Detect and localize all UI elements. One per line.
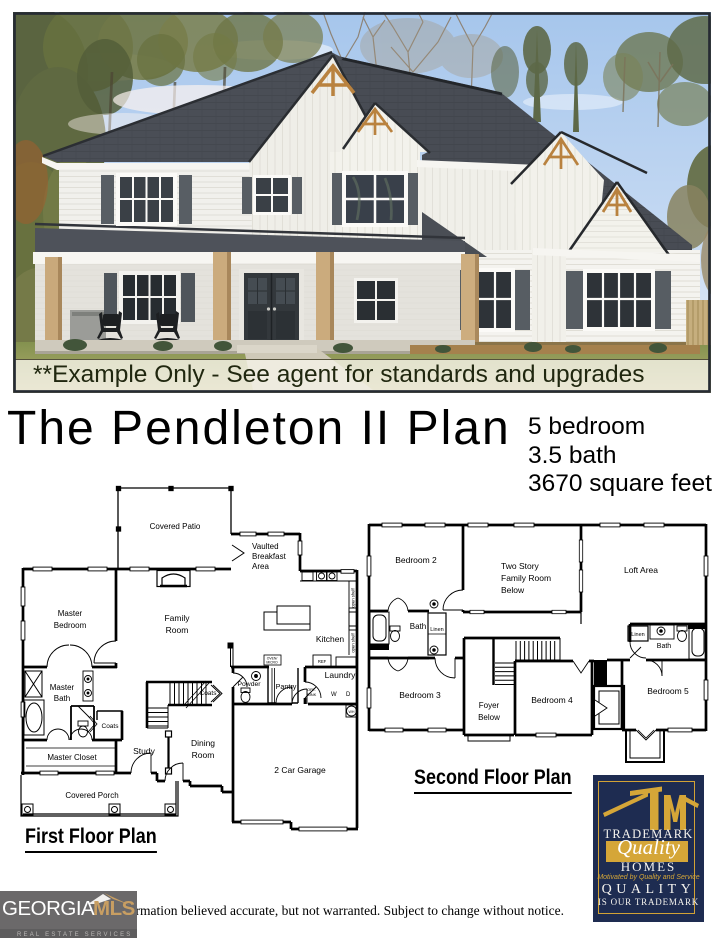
svg-text:Two Story: Two Story [501,561,540,571]
svg-text:MLS: MLS [93,897,135,920]
svg-text:Coats: Coats [102,723,120,730]
svg-text:Family Room: Family Room [501,573,551,583]
svg-text:Below: Below [478,713,500,722]
svg-text:MICRO: MICRO [266,661,278,665]
svg-text:Area: Area [252,562,269,571]
svg-text:Linen: Linen [631,632,644,638]
svg-text:Room: Room [192,750,215,760]
svg-text:REAL ESTATE SERVICES: REAL ESTATE SERVICES [17,932,132,938]
svg-text:Vaulted: Vaulted [252,542,279,551]
svg-text:Master: Master [58,609,83,618]
svg-text:Bath: Bath [54,694,70,703]
svg-text:Bath: Bath [410,622,426,631]
svg-text:2 Car Garage: 2 Car Garage [274,765,326,775]
svg-text:open shelf: open shelf [351,588,356,608]
svg-text:SINK: SINK [307,692,317,697]
svg-text:Bedroom 5: Bedroom 5 [647,686,689,696]
svg-text:**Example Only - See agent for: **Example Only - See agent for standards… [33,361,645,388]
svg-text:Laundry: Laundry [325,670,356,680]
svg-text:Bedroom: Bedroom [54,621,87,630]
svg-text:Bedroom 2: Bedroom 2 [395,555,437,565]
svg-text:Dining: Dining [191,738,215,748]
svg-text:REF: REF [318,659,327,664]
svg-text:Family: Family [164,613,190,623]
svg-text:open shelf: open shelf [351,633,356,653]
svg-text:Master: Master [50,683,75,692]
svg-text:GEORGIA: GEORGIA [2,897,95,920]
svg-text:Pantry: Pantry [276,682,297,691]
svg-text:Bath: Bath [657,643,672,650]
svg-text:W: W [331,692,337,698]
svg-text:Linen: Linen [430,627,443,633]
svg-text:WH: WH [349,710,355,714]
svg-text:D: D [346,692,351,698]
svg-text:Kitchen: Kitchen [316,634,345,644]
svg-text:Covered Porch: Covered Porch [65,791,118,800]
svg-text:Coats: Coats [200,690,218,697]
svg-text:Below: Below [501,585,525,595]
svg-text:Master Closet: Master Closet [47,753,97,762]
svg-text:Bedroom 3: Bedroom 3 [399,690,441,700]
svg-text:Powder: Powder [237,681,261,688]
svg-text:Study: Study [133,746,155,756]
svg-text:Foyer: Foyer [479,701,500,710]
svg-text:Breakfast: Breakfast [252,552,287,561]
svg-text:Bedroom 4: Bedroom 4 [531,695,573,705]
svg-text:Covered Patio: Covered Patio [150,522,201,531]
svg-text:Loft Area: Loft Area [624,565,658,575]
svg-text:Room: Room [166,625,189,635]
